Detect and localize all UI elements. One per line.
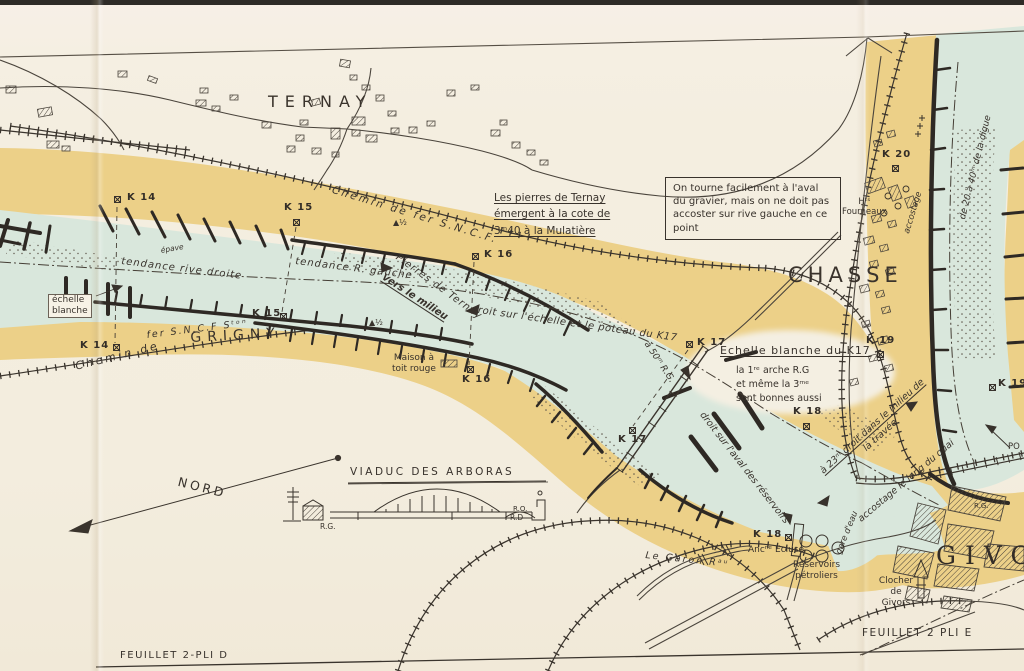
- river-navigation-chart: TERNAY GRIGNY CHASSE GIVORS Chemin de fe…: [0, 0, 1024, 671]
- place-line: toit rouge: [392, 364, 436, 375]
- km-label-k15-low: K 15: [252, 308, 281, 321]
- place-line: pétroliers: [793, 571, 840, 582]
- place-line: Fourneaux: [842, 207, 887, 217]
- km-mark-box: [629, 427, 636, 434]
- depth-half-mark: ▲½: [393, 218, 407, 228]
- note-line: échelle: [52, 295, 88, 306]
- sheet-label-pli-d: FEUILLET 2-PLI D: [120, 650, 229, 663]
- place-hauts-fourneaux: Hᵗˢ Fourneaux: [842, 197, 887, 217]
- place-line: Hᵗˢ: [842, 197, 887, 207]
- note-line: Les pierres de Ternay: [494, 190, 610, 206]
- viaduct-title: VIADUC DES ARBORAS: [350, 466, 514, 479]
- note-line: sont bonnes aussi: [736, 392, 822, 406]
- km-label-k16-top: K 16: [484, 249, 513, 262]
- place-line: Réservoirs: [793, 560, 840, 571]
- km-label-k19-right: K 19: [998, 378, 1024, 391]
- town-label-chasse: CHASSE: [788, 262, 903, 288]
- km-mark-box: [989, 384, 996, 391]
- bottom-neatline: [96, 649, 1024, 667]
- km-mark-box: [892, 165, 899, 172]
- po-label: PO: [1008, 442, 1020, 453]
- note-echelle-blanche-left: échelle blanche: [48, 294, 92, 318]
- note-line: blanche: [52, 306, 88, 317]
- place-line: de: [874, 587, 918, 598]
- town-label-ternay: TERNAY: [268, 92, 372, 112]
- ro-label: R.O.: [513, 505, 527, 514]
- km-label-k17-top: K 17: [697, 337, 726, 350]
- place-line: Maison à: [392, 353, 436, 364]
- note-line: 3ᵐ40 à la Mulatière: [494, 223, 610, 239]
- note-line: et même la 3ᵐᵉ: [736, 378, 822, 392]
- km-mark-box: [114, 196, 121, 203]
- km-mark-box: [113, 344, 120, 351]
- viaduct-sketch: [283, 481, 546, 521]
- photo-top-edge: [0, 0, 1024, 5]
- km-mark-box: [803, 423, 810, 430]
- km-mark-box: [293, 219, 300, 226]
- km-mark-box: [467, 366, 474, 373]
- km-label-k17-low: K 17: [618, 434, 647, 447]
- km-label-k14-top: K 14: [127, 192, 156, 205]
- place-line: Clocher: [874, 576, 918, 587]
- note-line: la 1ʳᵉ arche R.G: [736, 364, 822, 378]
- note-line: émergent à la cote de: [494, 206, 610, 222]
- place-line: Givors: [874, 598, 918, 609]
- km-label-k16-low: K 16: [462, 374, 491, 387]
- place-anc-ecluse: Ancⁿᵉ Ecluse: [748, 545, 804, 556]
- viaduct-rg-label: R.G.: [320, 522, 336, 531]
- note-echelle-blanche-k17: Echelle blanche du K17: [720, 344, 871, 358]
- km-label-k20: K 20: [882, 149, 911, 162]
- km-label-k19-top: K 19: [866, 335, 895, 348]
- km-mark-box: [686, 341, 693, 348]
- place-clocher-givors: Clocher de Givors: [874, 576, 918, 608]
- warning-note-box: On tourne facilement à l'aval du gravier…: [665, 177, 841, 240]
- depth-half-mark: ▲½: [369, 318, 383, 328]
- town-label-givors: GIVORS: [936, 540, 1024, 571]
- km-mark-box: [472, 253, 479, 260]
- km-label-k18-low: K 18: [753, 529, 782, 542]
- place-maison-toit-rouge: Maison à toit rouge: [392, 353, 436, 375]
- place-reservoirs: Réservoirs pétroliers: [793, 560, 840, 582]
- km-label-k14-low: K 14: [80, 340, 109, 353]
- bridge-rg-label: R.G.: [974, 502, 989, 511]
- km-label-k18-top: K 18: [793, 406, 822, 419]
- note-pierres-ternay-cote: Les pierres de Ternay émergent à la cote…: [494, 190, 610, 239]
- km-mark-box: [877, 351, 884, 358]
- sheet-label-pli-e: FEUILLET 2 PLI E: [862, 627, 973, 640]
- viaduct-rd-label: R.D: [510, 513, 523, 522]
- km-mark-box: [785, 534, 792, 541]
- km-label-k15-top: K 15: [284, 202, 313, 215]
- note-arches: la 1ʳᵉ arche R.G et même la 3ᵐᵉ sont bon…: [736, 364, 822, 405]
